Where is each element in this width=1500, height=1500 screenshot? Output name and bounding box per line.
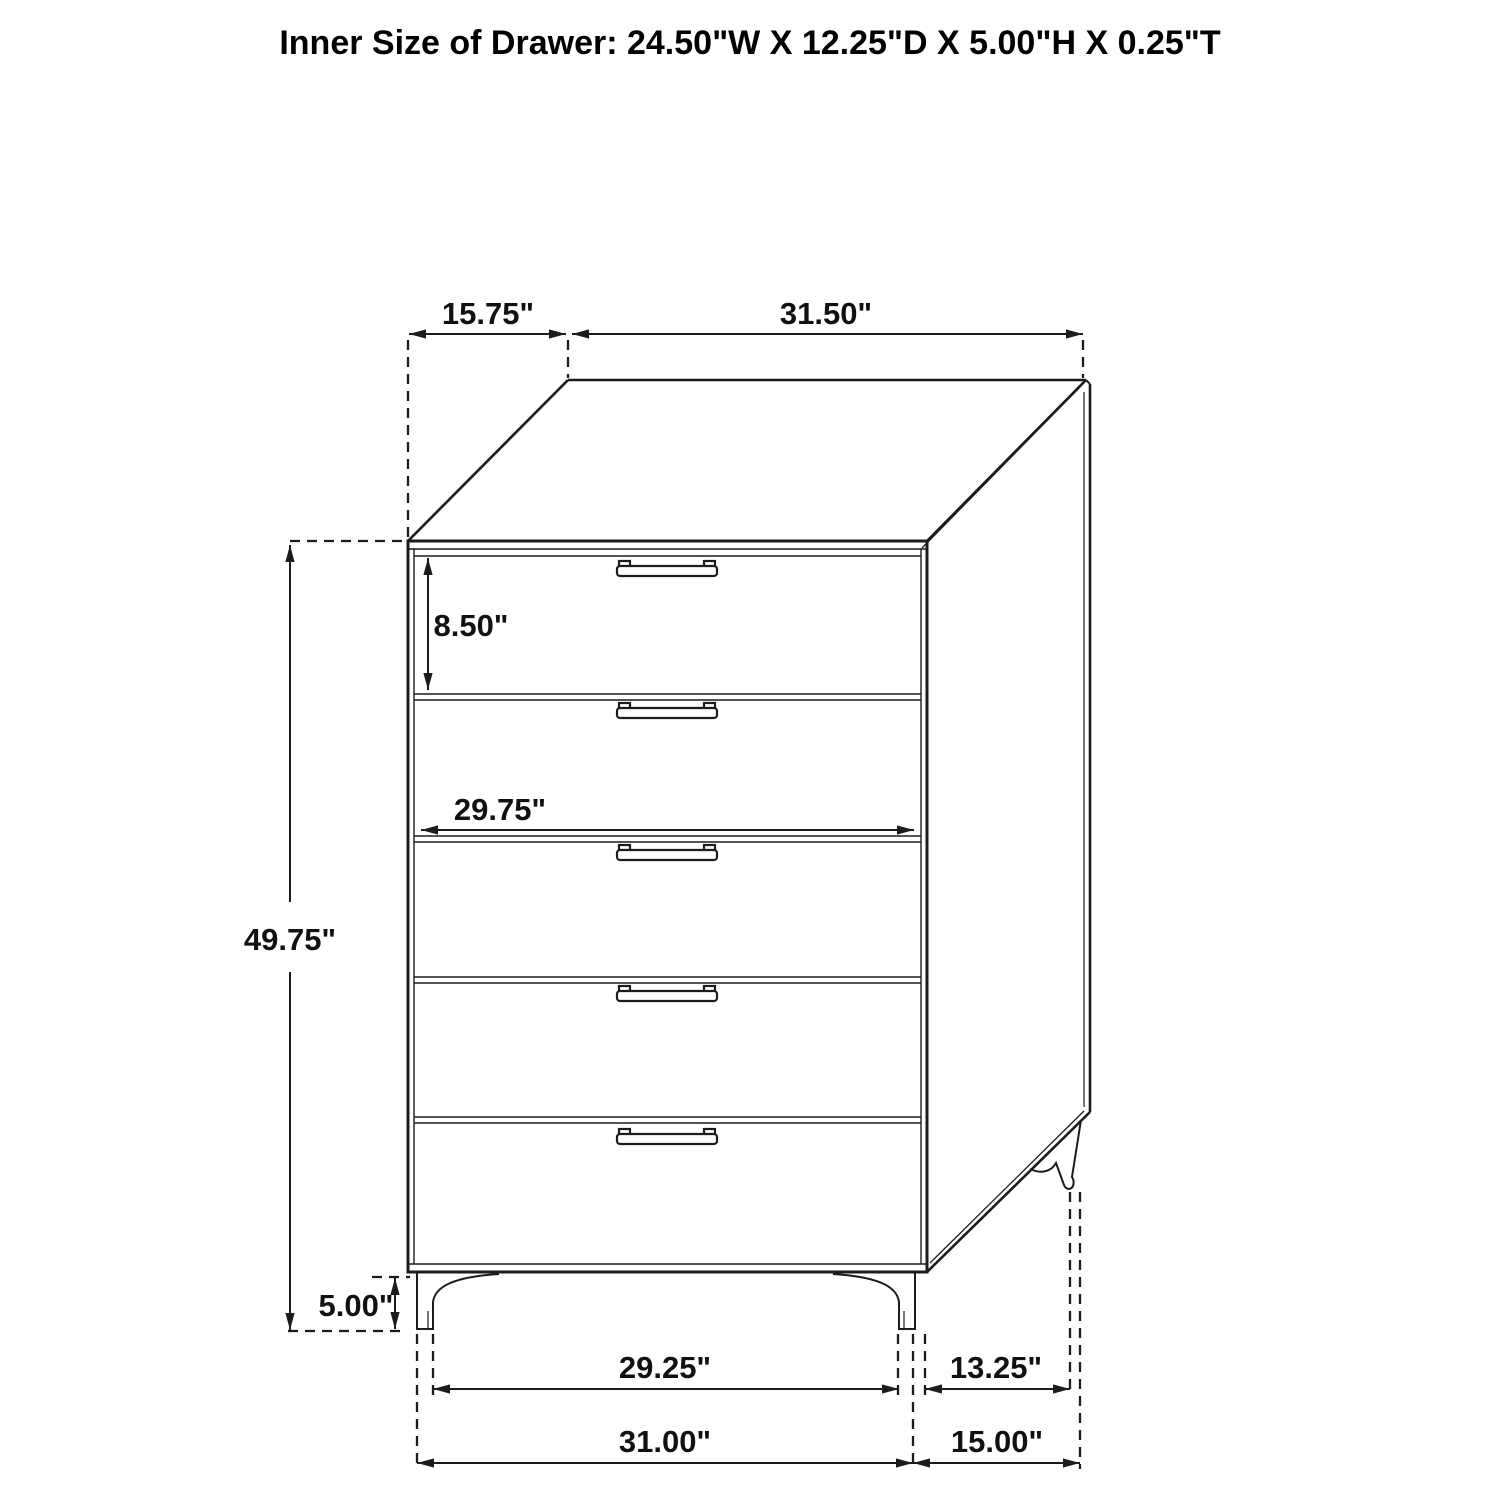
label-side-leg-span: 13.25" — [950, 1350, 1042, 1385]
back-right-leg — [1030, 1120, 1081, 1189]
label-front-leg-span: 29.25" — [619, 1350, 711, 1385]
drawer-handles — [617, 561, 717, 1144]
top-face — [408, 380, 1086, 549]
front-right-leg — [833, 1273, 915, 1329]
drawer-handle-4 — [617, 986, 717, 1001]
label-leg-height: 5.00" — [318, 1288, 393, 1323]
label-overall-height: 49.75" — [244, 922, 336, 957]
side-panel — [927, 380, 1090, 1272]
front-face — [408, 541, 927, 1272]
dimension-labels: 15.75" 31.50" 8.50" 29.75" 49.75" 5.00" … — [244, 296, 1043, 1459]
label-side-base-depth: 15.00" — [951, 1424, 1043, 1459]
drawer-handle-3 — [617, 845, 717, 860]
label-front-base-width: 31.00" — [619, 1424, 711, 1459]
label-top-drawer-height: 8.50" — [433, 608, 508, 643]
front-left-leg — [417, 1273, 499, 1329]
chest-dimension-diagram: 15.75" 31.50" 8.50" 29.75" 49.75" 5.00" … — [0, 0, 1500, 1500]
drawer-handle-5 — [617, 1129, 717, 1144]
drawer-handle-1 — [617, 561, 717, 576]
page: Inner Size of Drawer: 24.50"W X 12.25"D … — [0, 0, 1500, 1500]
legs — [417, 1120, 1081, 1329]
label-top-width: 31.50" — [780, 296, 872, 331]
chest-outline — [408, 380, 1090, 1329]
drawer-dividers — [414, 694, 921, 1123]
label-drawer-opening-width: 29.75" — [454, 792, 546, 827]
label-top-depth: 15.75" — [442, 296, 534, 331]
drawer-handle-2 — [617, 703, 717, 718]
